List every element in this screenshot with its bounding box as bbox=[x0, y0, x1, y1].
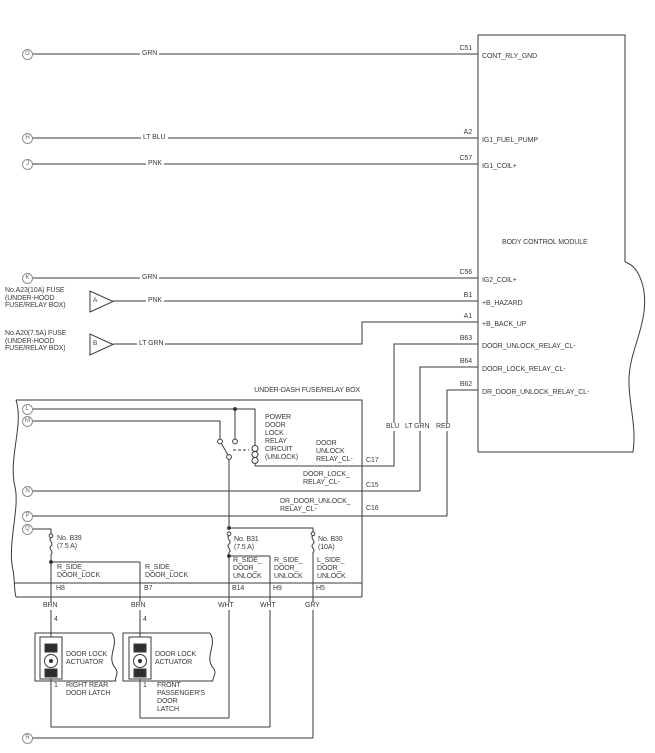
bcm-signal: IG2_COIL+ bbox=[482, 277, 517, 285]
bcm-pin: B63 bbox=[442, 335, 472, 343]
out-h5-label: DOOR_ bbox=[317, 565, 341, 573]
pin-h9: H9 bbox=[273, 585, 282, 593]
wire-color-ltgrn: LT GRN bbox=[403, 423, 431, 431]
wire-color-brn: BRN bbox=[41, 602, 59, 610]
wiring-diagram: G H J K L M N P Q R A B No.A23(10A) FUSE… bbox=[0, 0, 655, 753]
wire-color-grn: GRN bbox=[140, 50, 159, 58]
c15-signal: DOOR_LOCK_ bbox=[303, 471, 350, 479]
actuator2-pin1: 1 bbox=[143, 682, 147, 690]
actuator2-name: DOOR LOCK bbox=[155, 651, 196, 659]
wire-runs bbox=[33, 54, 478, 516]
actuator1-connector bbox=[40, 637, 62, 679]
fuse-a-label: No.A23(10A) FUSE bbox=[5, 287, 64, 295]
out-h9-label: R_SIDE_ bbox=[274, 557, 302, 565]
connector-letter-k: K bbox=[22, 273, 33, 284]
fuse-b-label: No.A20(7.5A) FUSE bbox=[5, 330, 66, 338]
c15-pin: C15 bbox=[366, 482, 379, 490]
actuator1-name: DOOR LOCK bbox=[66, 651, 107, 659]
c15-signal: RELAY_CL- bbox=[303, 479, 340, 487]
underdash-title: UNDER-DASH FUSE/RELAY BOX bbox=[240, 387, 360, 395]
fuse-a-label: FUSE/RELAY BOX) bbox=[5, 302, 65, 310]
c16-signal: RELAY_CL- bbox=[280, 506, 317, 514]
wire-color-pnk: PNK bbox=[146, 297, 164, 305]
fuse-b-label: FUSE/RELAY BOX) bbox=[5, 345, 65, 353]
out-h5-label: L_SIDE_ bbox=[317, 557, 344, 565]
wire-color-ltgrn: LT GRN bbox=[137, 340, 165, 348]
fuse-b39-label: (7.5 A) bbox=[57, 543, 77, 551]
latch2-label: PASSENGER'S bbox=[157, 690, 205, 698]
out-h5-label: UNLOCK bbox=[317, 573, 346, 581]
wire-color-red: RED bbox=[434, 423, 452, 431]
wire-color-brn: BRN bbox=[129, 602, 147, 610]
relay-label: RELAY bbox=[265, 438, 287, 446]
latch1-label: RIGHT REAR bbox=[66, 682, 108, 690]
connector-letter-j: J bbox=[22, 159, 33, 170]
connector-letter-m: M bbox=[22, 416, 33, 427]
bcm-pin: C57 bbox=[442, 155, 472, 163]
bcm-pin: B1 bbox=[442, 292, 472, 300]
relay-label: DOOR bbox=[265, 422, 286, 430]
out-b7-label: DOOR_LOCK bbox=[145, 572, 188, 580]
wire-color-wht: WHT bbox=[216, 602, 236, 610]
actuator2-connector bbox=[129, 637, 151, 679]
out-h8-label: DOOR_LOCK bbox=[57, 572, 100, 580]
c17-signal: DOOR bbox=[316, 440, 337, 448]
actuator1-pin1: 1 bbox=[54, 682, 58, 690]
wire-color-blu: BLU bbox=[384, 423, 401, 431]
connector-letter-n: N bbox=[22, 486, 33, 497]
connector-letter-l: L bbox=[22, 404, 33, 415]
out-b7-label: R_SIDE_ bbox=[145, 564, 173, 572]
bcm-pin: B64 bbox=[442, 358, 472, 366]
fuse-b31-label: No. B31 bbox=[234, 536, 259, 544]
bcm-pin: C56 bbox=[442, 269, 472, 277]
latch2-label: DOOR bbox=[157, 698, 178, 706]
out-b14-label: DOOR_ bbox=[233, 565, 257, 573]
bcm-pin: A2 bbox=[442, 129, 472, 137]
c17-signal: RELAY_CL- bbox=[316, 456, 353, 464]
out-b14-label: R_SIDE_ bbox=[233, 557, 261, 565]
pin-h8: H8 bbox=[56, 585, 65, 593]
c17-pin: C17 bbox=[366, 457, 379, 465]
pin-b14: B14 bbox=[232, 585, 244, 593]
fuse-b39-label: No. B39 bbox=[57, 535, 82, 543]
triangle-a-label: A bbox=[93, 297, 97, 305]
connector-letter-h: H bbox=[22, 133, 33, 144]
fuse-b30-label: (10A) bbox=[318, 544, 335, 552]
bcm-signal: +B_HAZARD bbox=[482, 300, 523, 308]
latch2-label: LATCH bbox=[157, 706, 179, 714]
bcm-signal: DR_DOOR_UNLOCK_RELAY_CL- bbox=[482, 389, 589, 397]
actuator1-pin4: 4 bbox=[54, 616, 58, 624]
out-h8-label: R_SIDE_ bbox=[57, 564, 85, 572]
wire-color-grn: GRN bbox=[140, 274, 159, 282]
out-h9-label: UNLOCK bbox=[274, 573, 303, 581]
bcm-signal: IG1_FUEL_PUMP bbox=[482, 137, 538, 145]
relay-label: (UNLOCK) bbox=[265, 454, 298, 462]
wire-color-pnk: PNK bbox=[146, 160, 164, 168]
relay-label: LOCK bbox=[265, 430, 284, 438]
latch1-label: DOOR LATCH bbox=[66, 690, 110, 698]
out-h9-label: DOOR_ bbox=[274, 565, 298, 573]
fuse-b30 bbox=[311, 532, 315, 738]
actuator2-name: ACTUATOR bbox=[155, 659, 192, 667]
pin-h5: H5 bbox=[316, 585, 325, 593]
bcm-pin: A1 bbox=[442, 313, 472, 321]
actuator1-name: ACTUATOR bbox=[66, 659, 103, 667]
out-b14-label: UNLOCK bbox=[233, 573, 262, 581]
relay-label: POWER bbox=[265, 414, 291, 422]
bcm-pin: B62 bbox=[442, 381, 472, 389]
relay-label: CIRCUIT bbox=[265, 446, 293, 454]
c16-pin: C16 bbox=[366, 505, 379, 513]
bcm-title: BODY CONTROL MODULE bbox=[502, 239, 588, 247]
wire-color-wht: WHT bbox=[258, 602, 278, 610]
pin-b7: B7 bbox=[144, 585, 152, 593]
bcm-signal: DOOR_LOCK_RELAY_CL- bbox=[482, 366, 566, 374]
fuse-b30-label: No. B30 bbox=[318, 536, 343, 544]
c16-signal: DR_DOOR_UNLOCK_ bbox=[280, 498, 350, 506]
connector-letter-g: G bbox=[22, 49, 33, 60]
wiring-lines bbox=[0, 0, 655, 753]
connector-letter-p: P bbox=[22, 511, 33, 522]
bcm-signal: IG1_COIL+ bbox=[482, 163, 517, 171]
bcm-signal: +B_BACK_UP bbox=[482, 321, 526, 329]
wire-color-ltblu: LT BLU bbox=[141, 134, 168, 142]
wire-color-gry: GRY bbox=[303, 602, 322, 610]
bcm-signal: DOOR_UNLOCK_RELAY_CL- bbox=[482, 343, 575, 351]
fuse-b31-label: (7.5 A) bbox=[234, 544, 254, 552]
connector-letter-r: R bbox=[22, 733, 33, 744]
connector-letter-q: Q bbox=[22, 524, 33, 535]
triangle-b-label: B bbox=[93, 340, 97, 348]
actuator2-pin4: 4 bbox=[143, 616, 147, 624]
c17-signal: UNLOCK bbox=[316, 448, 345, 456]
latch2-label: FRONT bbox=[157, 682, 181, 690]
bcm-signal: CONT_RLY_GND bbox=[482, 53, 537, 61]
bcm-pin: C51 bbox=[442, 45, 472, 53]
